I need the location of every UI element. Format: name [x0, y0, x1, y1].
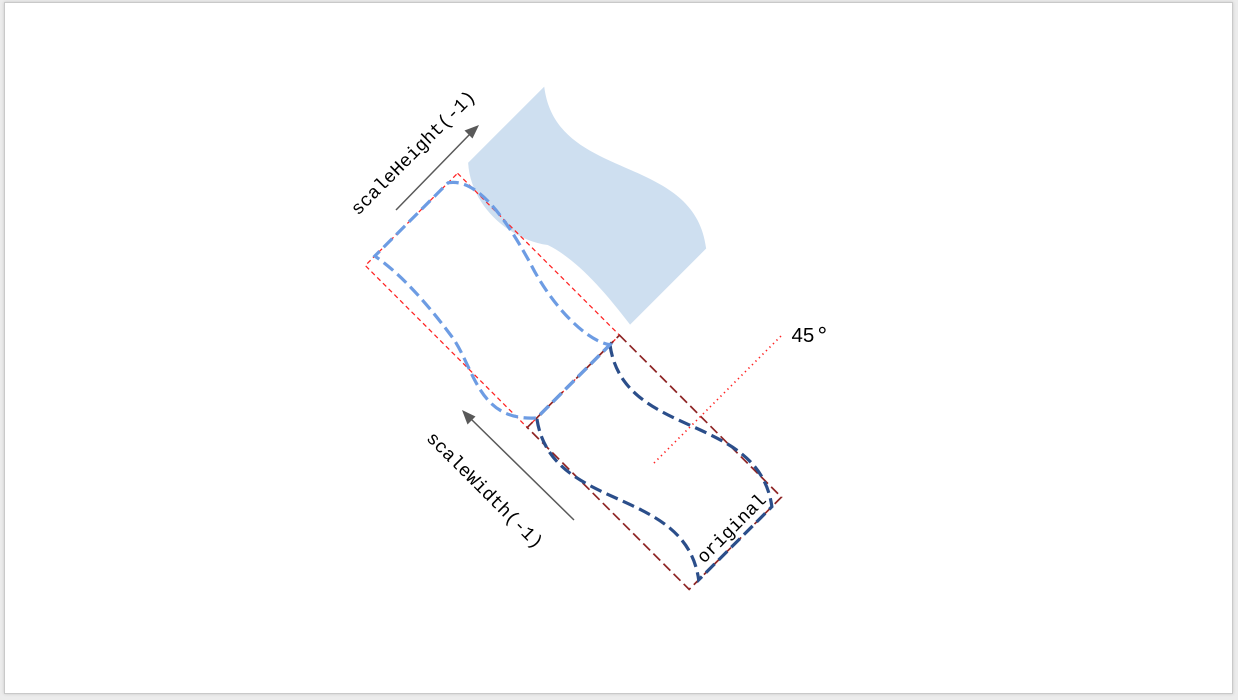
- svg-text:45: 45: [792, 324, 815, 347]
- svg-text:°: °: [818, 323, 828, 350]
- svg-text:original: original: [693, 490, 771, 568]
- svg-text:scaleHeight(-1): scaleHeight(-1): [347, 87, 480, 220]
- svg-text:scaleWidth(-1): scaleWidth(-1): [421, 428, 546, 553]
